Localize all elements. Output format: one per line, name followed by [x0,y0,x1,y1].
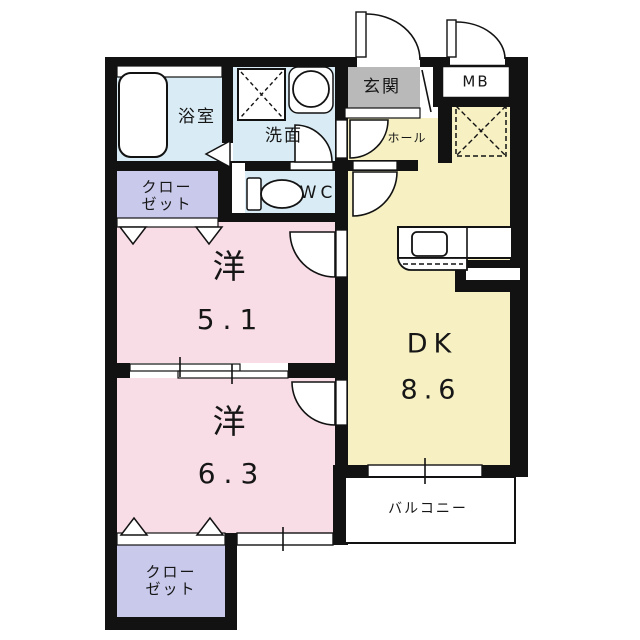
closet-lower-label-line2: ゼット [145,580,196,598]
wall-left [105,57,117,630]
wc-side-panel [232,163,245,213]
vanity-sink-bowl [293,71,329,107]
meter-box-label: MB [462,73,489,90]
floor-plan: 浴室 洗面 玄関 MB ホール WC クローゼット クローゼット 洋 5.1 洋… [0,0,640,640]
wall-slide-stub-right [288,363,348,378]
mb-door-arc [456,22,505,59]
entrance-step [345,108,420,118]
kitchen-counter-front [398,257,467,270]
closet-lower-label: クローゼット [145,564,196,599]
toilet-tank [247,178,261,210]
washroom-door-leaf [336,120,347,158]
closet-upper-label: クローゼット [141,179,192,214]
wall-bath-washroom [222,57,233,143]
wall-closet-lower-right [225,533,237,623]
sliding-door-panel-b [178,371,288,378]
entrance-door-opening [357,57,420,67]
entrance-door-arc [366,14,420,60]
closet-upper-label-line1: クロー [141,178,192,196]
wall-wc-bottom [218,213,348,222]
western-lower-door-leaf [336,380,347,425]
toilet-bowl [261,180,303,208]
western-room-lower-label: 洋 [213,403,246,441]
washroom-wc-door-leaf [290,162,333,170]
closet-lower-label-line1: クロー [145,563,196,581]
western-room-upper-label: 洋 [213,248,246,286]
wall-wc-left [218,161,232,222]
hall-label: ホール [387,132,426,146]
bathroom-label: 浴室 [178,108,216,128]
floor-plan-canvas [0,0,640,640]
western-room-upper-size: 5.1 [197,304,266,336]
sliding-door-panel-a [130,364,240,371]
wc-label: WC [300,184,337,204]
mb-door-open-leaf [447,20,456,57]
bathtub [119,73,167,157]
closet-upper-track [117,218,218,227]
washroom-label: 洗面 [265,127,303,147]
entrance-door-open-leaf [356,12,366,57]
western-lower-window [237,533,333,545]
dk-size: 8.6 [401,374,462,405]
kitchen-sink [412,232,447,256]
balcony-label: バルコニー [388,501,468,517]
closet-upper-label-line2: ゼット [141,195,192,213]
wall-slide-stub-left [117,363,130,378]
wall-bottom [105,617,237,630]
dk-door-leaf [353,161,397,170]
western-room-lower-size: 6.3 [198,458,267,490]
kitchen-pass-slot [466,268,520,280]
hall-dk-passage [418,158,438,172]
western-upper-door-leaf [336,230,347,277]
entrance-label: 玄関 [363,78,401,98]
dk-label: DK [407,328,458,359]
